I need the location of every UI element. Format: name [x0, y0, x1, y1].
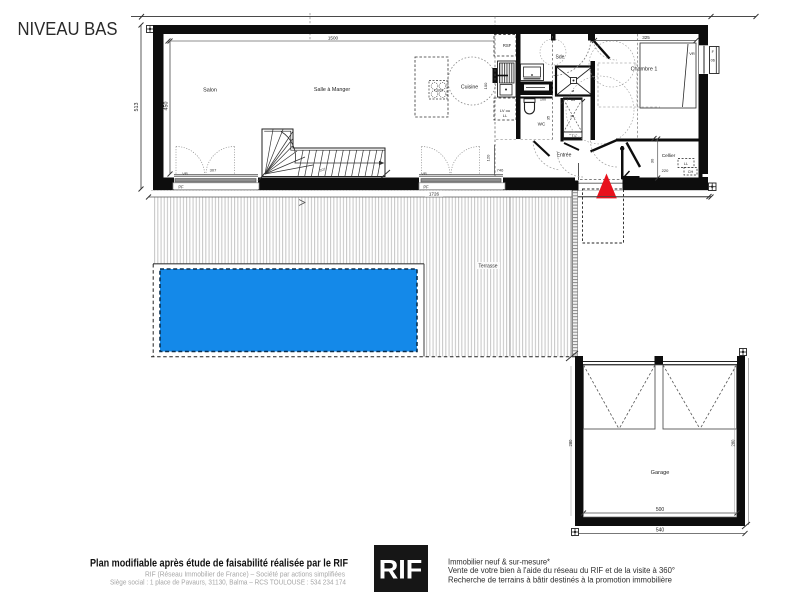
svg-text:LL: LL — [684, 162, 688, 166]
svg-text:PF: PF — [423, 184, 429, 189]
svg-text:65: 65 — [571, 98, 575, 102]
svg-text:⌃T.L: ⌃T.L — [568, 134, 576, 138]
svg-text:1500: 1500 — [328, 36, 339, 41]
svg-text:VR: VR — [689, 51, 695, 56]
svg-text:280: 280 — [731, 439, 736, 447]
svg-text:Siège social : 1 place de Pava: Siège social : 1 place de Pavaurs, 31130… — [110, 579, 346, 586]
svg-text:280: 280 — [568, 439, 573, 447]
svg-text:220: 220 — [662, 168, 669, 173]
svg-text:Plan modifiable après étude de: Plan modifiable après étude de faisabili… — [90, 558, 348, 570]
svg-text:1726: 1726 — [429, 192, 440, 197]
svg-text:WC: WC — [538, 122, 546, 127]
svg-text:RSF: RSF — [503, 43, 512, 48]
svg-text:CH: CH — [688, 170, 694, 174]
svg-text:LL: LL — [503, 113, 508, 118]
svg-text:Vente de votre bien à l'aide d: Vente de votre bien à l'aide du réseau d… — [448, 566, 675, 575]
svg-text:Immobilier neuf & sur-mesure*: Immobilier neuf & sur-mesure* — [448, 557, 550, 566]
svg-text:RIF: RIF — [379, 555, 423, 585]
svg-text:06: 06 — [711, 59, 715, 63]
svg-text:746: 746 — [497, 168, 504, 173]
svg-text:PF: PF — [178, 184, 184, 189]
svg-text:Cuisine: Cuisine — [461, 85, 478, 91]
svg-text:Garage: Garage — [651, 470, 670, 476]
svg-text:450: 450 — [164, 102, 170, 111]
svg-text:100: 100 — [540, 98, 546, 102]
svg-text:513: 513 — [134, 103, 140, 112]
svg-text:120: 120 — [486, 154, 491, 161]
svg-text:Recherche de terrains à bâtir: Recherche de terrains à bâtir destinés à… — [448, 575, 673, 584]
svg-text:NIVEAU BAS: NIVEAU BAS — [18, 19, 118, 39]
svg-text:Salle à Manger: Salle à Manger — [314, 87, 350, 93]
svg-text:CUIS: CUIS — [434, 89, 443, 93]
svg-text:Terrasse: Terrasse — [478, 264, 497, 270]
svg-text:Cellier: Cellier — [662, 153, 676, 159]
svg-text:540: 540 — [656, 528, 665, 534]
svg-text:325: 325 — [642, 35, 650, 40]
svg-text:Sde: Sde — [556, 55, 565, 61]
svg-text:Entrée: Entrée — [557, 153, 572, 159]
svg-text:100: 100 — [483, 82, 488, 89]
svg-text:VR: VR — [182, 171, 188, 176]
svg-text:307: 307 — [210, 168, 217, 173]
svg-text:500: 500 — [656, 507, 665, 513]
svg-text:35: 35 — [547, 116, 551, 120]
svg-text:30: 30 — [650, 158, 655, 163]
svg-text:Salon: Salon — [203, 88, 217, 94]
svg-text:VR: VR — [421, 171, 427, 176]
svg-text:PL: PL — [571, 114, 577, 119]
svg-text:RIF (Réseau Immobilier de Fran: RIF (Réseau Immobilier de France) – Soci… — [145, 571, 345, 578]
